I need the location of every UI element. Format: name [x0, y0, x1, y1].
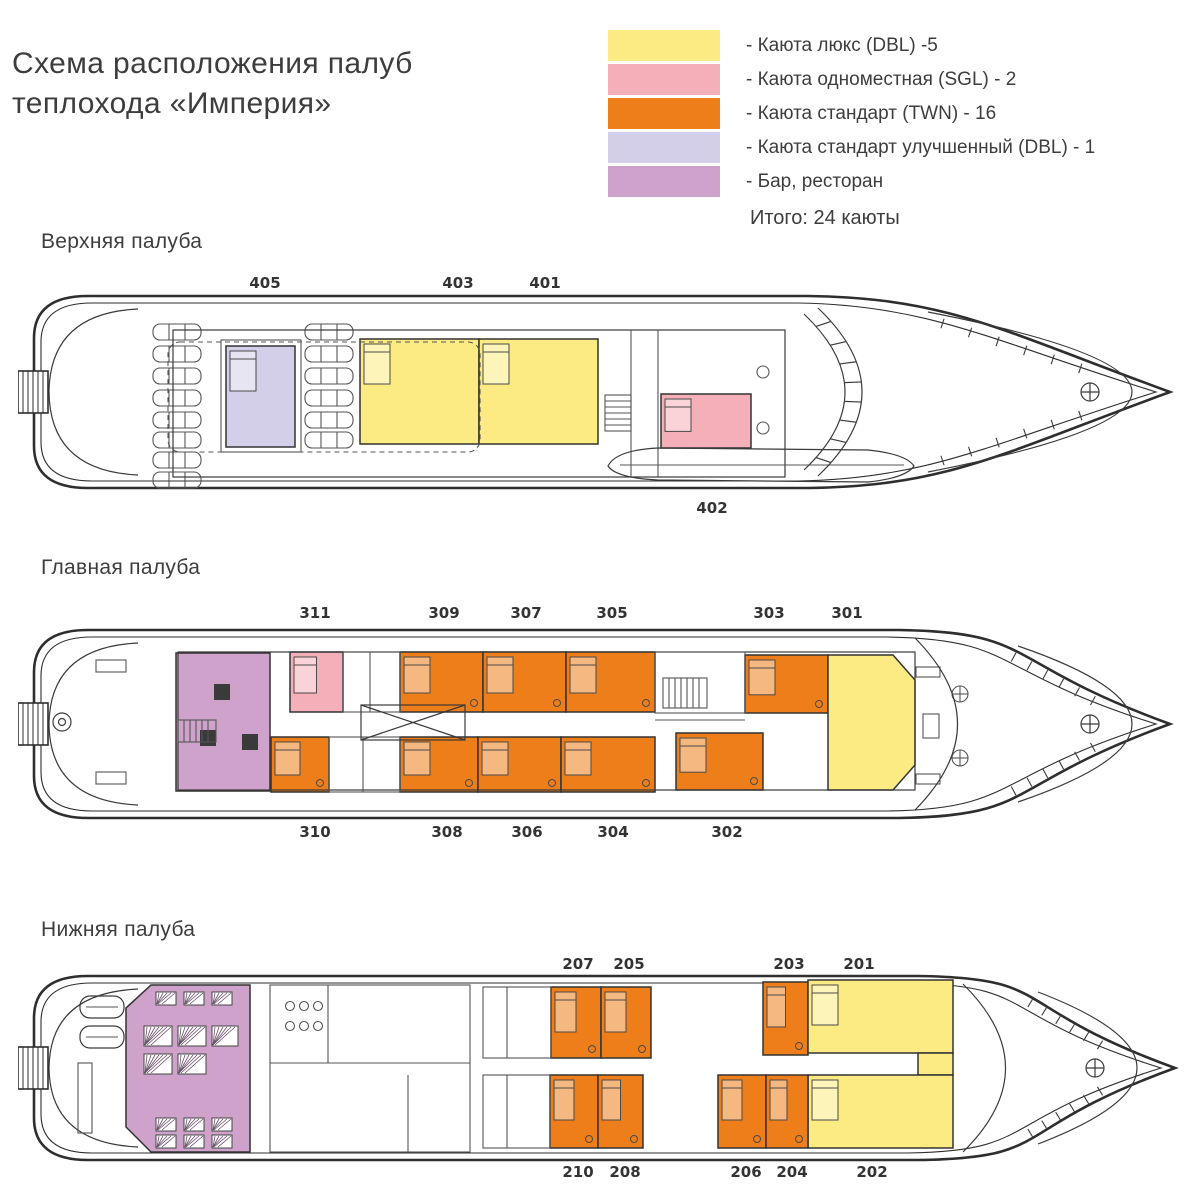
- hull-outline: [34, 296, 1170, 488]
- cabin-number-202: 202: [856, 1163, 887, 1181]
- deck-scheme-page: Схема расположения палуб теплохода «Импе…: [0, 0, 1200, 1200]
- cabin-number-403: 403: [442, 274, 473, 292]
- cabin-number-309: 309: [428, 604, 459, 622]
- bow-winch: [1081, 383, 1099, 401]
- gangway-platform: [18, 371, 48, 413]
- page-title-line2: теплохода «Империя»: [12, 84, 413, 124]
- legend-row-sgl: - Каюта одноместная (SGL) - 2: [608, 64, 1095, 95]
- seating-cluster: [144, 1054, 172, 1074]
- gangway-platform: [18, 1047, 48, 1089]
- legend: - Каюта люкс (DBL) -5- Каюта одноместная…: [608, 30, 1095, 230]
- legend-swatch-bar: [608, 166, 720, 197]
- cabin-number-401: 401: [529, 274, 560, 292]
- cabin-number-402: 402: [696, 499, 727, 517]
- cabin-number-203: 203: [773, 955, 804, 973]
- legend-row-dbl_imp: - Каюта стандарт улучшенный (DBL) - 1: [608, 132, 1095, 163]
- cabin-number-305: 305: [596, 604, 627, 622]
- legend-row-bar: - Бар, ресторан: [608, 166, 1095, 197]
- cabin-number-310: 310: [299, 823, 330, 841]
- legend-label: - Бар, ресторан: [746, 171, 883, 193]
- legend-swatch-lux: [608, 30, 720, 61]
- bed-icon: [812, 1080, 838, 1120]
- cabin-number-306: 306: [511, 823, 542, 841]
- bed-icon: [364, 344, 390, 384]
- seating-cluster: [178, 1054, 206, 1074]
- seating-cluster: [184, 992, 204, 1005]
- seating-cluster: [212, 1026, 238, 1046]
- cabin-301-area: [828, 655, 915, 790]
- gangway-platform: [18, 703, 48, 745]
- deck-title-main: Главная палуба: [41, 556, 200, 580]
- seating-cluster: [156, 1135, 176, 1148]
- deck-title-lower: Нижняя палуба: [41, 918, 195, 942]
- page-title: Схема расположения палуб теплохода «Импе…: [12, 44, 413, 124]
- deck-plan-upper: [18, 290, 1180, 495]
- legend-row-lux: - Каюта люкс (DBL) -5: [608, 30, 1095, 61]
- bow-winch: [1086, 1059, 1104, 1077]
- bed-icon: [665, 399, 691, 431]
- legend-swatch-dbl_imp: [608, 132, 720, 163]
- deck-title-upper: Верхняя палуба: [41, 230, 202, 254]
- seating-cluster: [212, 992, 232, 1005]
- legend-total: Итого: 24 каюты: [750, 207, 1095, 230]
- suite-connector-area: [918, 1053, 953, 1075]
- seating-cluster: [178, 1026, 206, 1046]
- cabin-number-201: 201: [843, 955, 874, 973]
- cabin-number-308: 308: [431, 823, 462, 841]
- cabin-number-207: 207: [562, 955, 593, 973]
- seating-cluster: [144, 1026, 172, 1046]
- cabin-number-206: 206: [730, 1163, 761, 1181]
- cabin-number-311: 311: [299, 604, 330, 622]
- cabin-number-208: 208: [609, 1163, 640, 1181]
- seating-cluster: [184, 1135, 204, 1148]
- cabin-number-304: 304: [597, 823, 628, 841]
- page-title-line1: Схема расположения палуб: [12, 44, 413, 84]
- legend-label: - Каюта одноместная (SGL) - 2: [746, 69, 1016, 91]
- cabin-number-301: 301: [831, 604, 862, 622]
- deck-plan-lower: [18, 968, 1180, 1168]
- cabin-number-303: 303: [753, 604, 784, 622]
- legend-swatch-sgl: [608, 64, 720, 95]
- cabin-number-204: 204: [776, 1163, 807, 1181]
- bow-winch: [1081, 715, 1099, 733]
- bed-icon: [483, 344, 509, 384]
- seating-cluster: [156, 992, 176, 1005]
- legend-label: - Каюта стандарт улучшенный (DBL) - 1: [746, 137, 1095, 159]
- legend-label: - Каюта люкс (DBL) -5: [746, 35, 938, 57]
- cabin-number-205: 205: [613, 955, 644, 973]
- cabin-number-405: 405: [249, 274, 280, 292]
- legend-label: - Каюта стандарт (TWN) - 16: [746, 103, 996, 125]
- seating-cluster: [212, 1118, 232, 1131]
- seating-cluster: [156, 1118, 176, 1131]
- cabin-number-210: 210: [562, 1163, 593, 1181]
- seating-cluster: [184, 1118, 204, 1131]
- legend-swatch-twn: [608, 98, 720, 129]
- deck-plan-main: [18, 622, 1180, 822]
- cabin-number-307: 307: [510, 604, 541, 622]
- cabin-number-302: 302: [711, 823, 742, 841]
- bed-icon: [812, 985, 838, 1025]
- legend-row-twn: - Каюта стандарт (TWN) - 16: [608, 98, 1095, 129]
- seating-cluster: [212, 1135, 232, 1148]
- bed-icon: [294, 657, 317, 693]
- bed-icon: [230, 351, 256, 391]
